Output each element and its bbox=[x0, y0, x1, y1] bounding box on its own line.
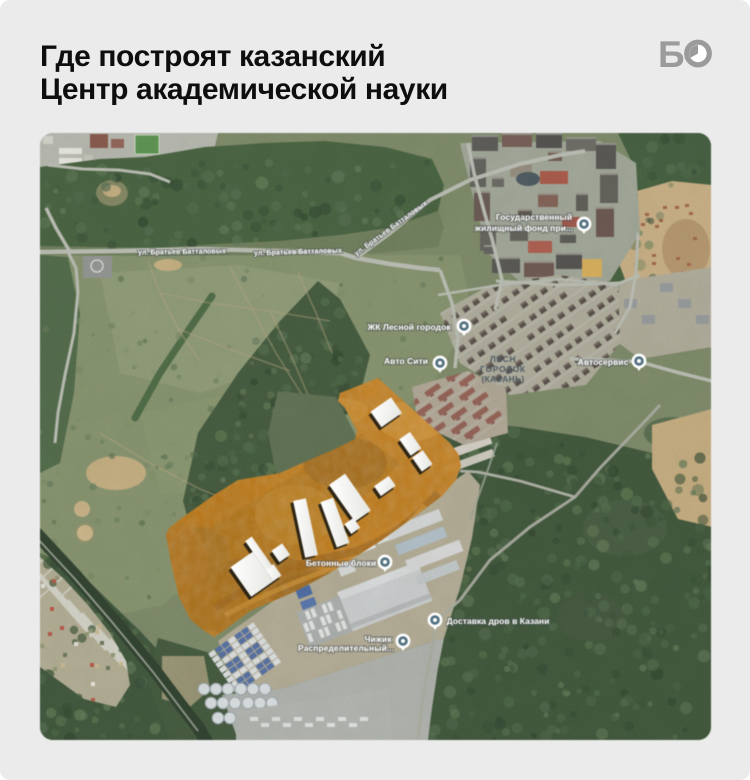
svg-text:Автосервис: Автосервис bbox=[578, 357, 629, 367]
svg-text:Доставка дров в Казани: Доставка дров в Казани bbox=[447, 616, 550, 626]
svg-text:ГОРОДОК: ГОРОДОК bbox=[480, 364, 526, 374]
svg-text:Авто Сити: Авто Сити bbox=[384, 356, 428, 366]
svg-text:ул. Братьев Батталовых: ул. Братьев Батталовых bbox=[138, 246, 226, 257]
svg-text:ЛЕСН: ЛЕСН bbox=[490, 354, 516, 364]
svg-text:(КАЗАНЬ): (КАЗАНЬ) bbox=[481, 374, 524, 384]
svg-text:Государственный: Государственный bbox=[496, 212, 572, 222]
svg-text:ЖК Лесной городок: ЖК Лесной городок bbox=[366, 322, 451, 332]
svg-text:жилищный фонд при...: жилищный фонд при... bbox=[474, 223, 573, 233]
svg-text:Б: Б bbox=[658, 38, 685, 70]
svg-text:Распределительный...: Распределительный... bbox=[298, 643, 394, 653]
svg-text:Бетонные блоки: Бетонные блоки bbox=[306, 558, 376, 568]
